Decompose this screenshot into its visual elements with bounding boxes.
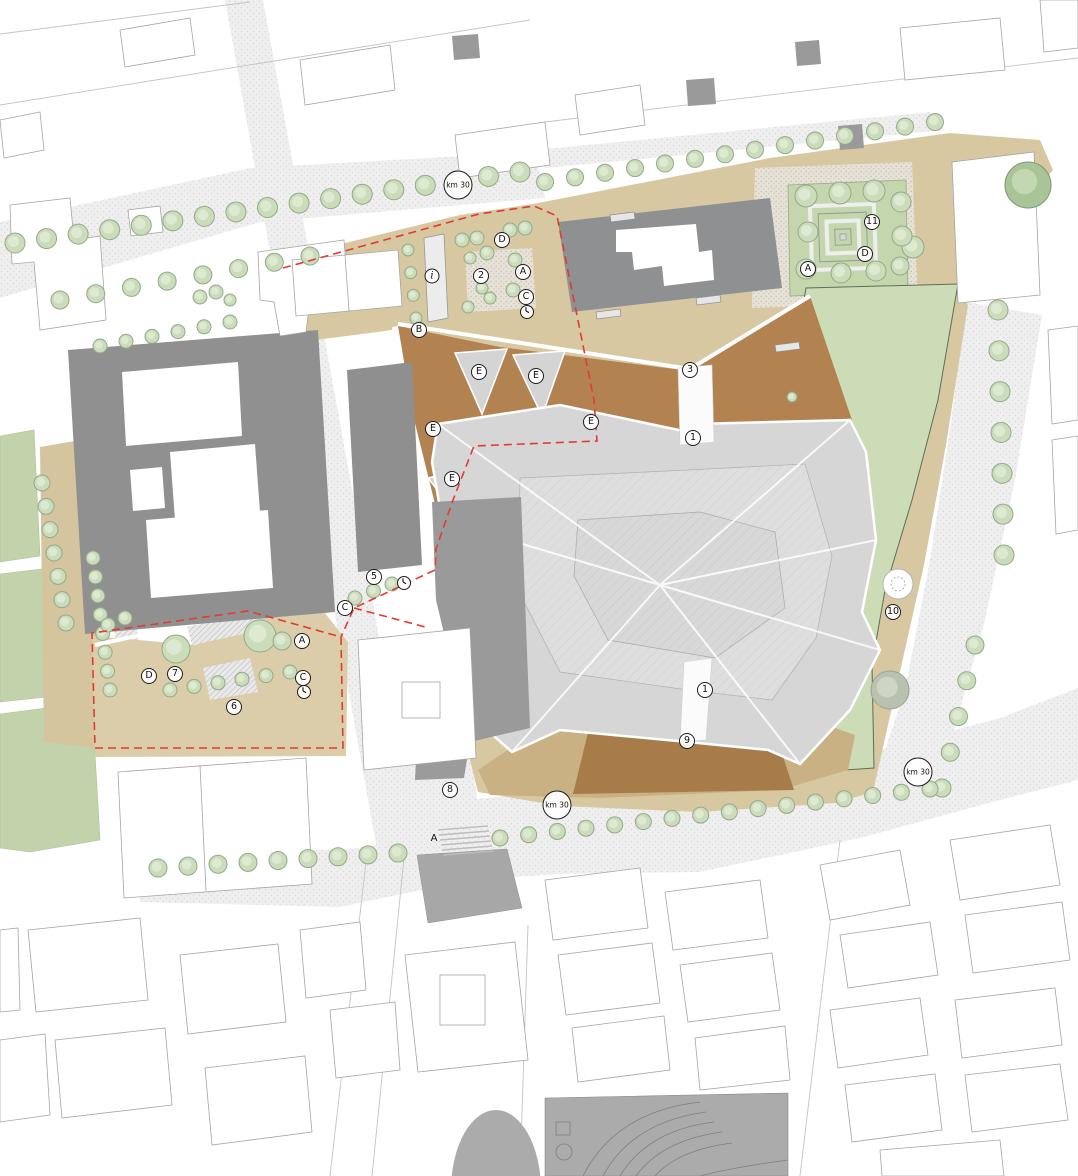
tree-icon xyxy=(506,283,520,297)
tree-icon xyxy=(480,246,494,260)
tree-icon xyxy=(567,169,584,186)
tree-icon xyxy=(518,221,532,235)
tree-icon xyxy=(410,312,422,324)
tree-icon xyxy=(958,672,976,690)
tree-icon xyxy=(464,252,476,264)
tree-icon xyxy=(508,253,522,267)
tree-icon xyxy=(402,244,414,256)
tree-icon xyxy=(100,220,120,240)
tree-icon xyxy=(348,591,362,605)
tree-icon xyxy=(990,382,1010,402)
site-plan-drawing xyxy=(0,0,1078,1176)
annex-building xyxy=(347,362,422,572)
tree-icon xyxy=(226,202,246,222)
tree-icon xyxy=(131,215,151,235)
tree-icon xyxy=(837,127,854,144)
tree-icon xyxy=(798,222,818,242)
tree-icon xyxy=(299,850,317,868)
tree-icon xyxy=(750,801,766,817)
tree-icon xyxy=(103,683,117,697)
tree-icon xyxy=(484,292,496,304)
tree-icon xyxy=(211,676,225,690)
tree-icon xyxy=(187,679,201,693)
tree-icon xyxy=(68,224,88,244)
tree-icon xyxy=(657,155,674,172)
tree-icon xyxy=(98,645,112,659)
tree-icon xyxy=(50,568,66,584)
tree-icon xyxy=(807,132,824,149)
tree-icon xyxy=(407,289,419,301)
tree-icon xyxy=(747,141,764,158)
tree-icon xyxy=(447,171,467,191)
tree-icon xyxy=(829,182,851,204)
tree-icon xyxy=(991,423,1011,443)
tree-icon xyxy=(687,150,704,167)
tree-icon xyxy=(87,285,105,303)
tree-icon xyxy=(578,820,594,836)
tree-icon xyxy=(777,137,794,154)
tree-icon xyxy=(158,272,176,290)
tree-icon xyxy=(405,267,417,279)
tree-icon xyxy=(5,233,25,253)
tree-icon xyxy=(163,211,183,231)
tree-icon xyxy=(209,855,227,873)
tree-icon xyxy=(492,830,508,846)
tree-icon xyxy=(455,233,469,247)
tree-icon xyxy=(193,290,207,304)
tree-icon xyxy=(34,475,50,491)
tree-icon xyxy=(892,226,912,246)
south-gray-building xyxy=(417,849,522,923)
tree-icon xyxy=(93,339,107,353)
tree-icon xyxy=(239,853,257,871)
tree-icon xyxy=(867,123,884,140)
tree-icon xyxy=(807,794,823,810)
bottom-terrace-panel xyxy=(545,1093,788,1176)
tree-icon xyxy=(796,259,816,279)
tree-icon xyxy=(194,206,214,226)
tree-icon xyxy=(235,672,249,686)
tree-icon xyxy=(86,551,100,565)
tree-icon xyxy=(88,570,102,584)
tree-icon xyxy=(269,852,287,870)
block-below-left-plaza xyxy=(118,758,312,898)
tree-icon xyxy=(897,118,914,135)
museum-building xyxy=(68,330,335,634)
tree-icon xyxy=(171,325,185,339)
tree-icon xyxy=(163,683,177,697)
tree-icon xyxy=(470,231,484,245)
tree-icon xyxy=(521,827,537,843)
tree-icon xyxy=(607,817,623,833)
tree-icon xyxy=(893,784,909,800)
tree-icon xyxy=(462,301,474,313)
tree-icon xyxy=(58,615,74,631)
dome-building xyxy=(451,1110,541,1176)
tree-icon xyxy=(367,584,381,598)
tree-icon xyxy=(179,857,197,875)
tree-icon xyxy=(122,278,140,296)
tree-icon xyxy=(510,162,530,182)
tree-icon xyxy=(359,846,377,864)
tree-icon xyxy=(989,341,1009,361)
tree-icon xyxy=(693,807,709,823)
tree-icon xyxy=(891,192,911,212)
site-plan-canvas: km 30km 30km 30i2DACB11DA31EEEEE5CD7AC61… xyxy=(0,0,1078,1176)
tree-icon xyxy=(265,253,283,271)
tree-icon xyxy=(209,285,223,299)
tree-icon xyxy=(891,257,909,275)
tree-icon xyxy=(224,294,236,306)
tree-icon xyxy=(866,261,886,281)
tree-icon xyxy=(162,635,190,663)
tree-icon xyxy=(717,146,734,163)
tree-icon xyxy=(966,636,984,654)
tree-icon xyxy=(119,334,133,348)
tram-platform xyxy=(424,234,448,322)
tree-icon xyxy=(38,498,54,514)
tree-icon xyxy=(194,266,212,284)
tree-icon xyxy=(149,859,167,877)
tree-icon xyxy=(476,282,488,294)
tree-icon xyxy=(478,166,498,186)
tree-icon xyxy=(721,804,737,820)
tree-icon xyxy=(223,315,237,329)
tree-icon xyxy=(787,392,797,402)
tree-icon xyxy=(537,174,554,191)
tree-icon xyxy=(54,592,70,608)
tree-icon xyxy=(863,180,885,202)
tree-icon xyxy=(927,114,944,131)
tree-icon xyxy=(51,291,69,309)
tree-icon xyxy=(244,620,276,652)
north-bridge xyxy=(678,365,714,445)
tree-icon xyxy=(795,185,817,207)
tree-icon xyxy=(329,848,347,866)
tree-icon xyxy=(283,665,297,679)
tree-icon xyxy=(831,263,851,283)
tree-icon xyxy=(384,180,404,200)
tree-icon xyxy=(258,198,278,218)
tree-icon xyxy=(301,247,319,265)
tree-icon xyxy=(836,791,852,807)
fountain xyxy=(883,569,913,599)
tree-icon xyxy=(627,160,644,177)
tree-icon xyxy=(145,329,159,343)
tree-icon xyxy=(37,229,57,249)
tree-icon xyxy=(230,260,248,278)
tree-icon xyxy=(941,743,959,761)
tree-icon xyxy=(597,164,614,181)
tree-icon xyxy=(635,814,651,830)
tree-icon xyxy=(352,184,372,204)
tree-icon xyxy=(389,844,407,862)
tree-icon xyxy=(273,632,291,650)
tree-icon xyxy=(1005,162,1051,208)
tree-icon xyxy=(46,545,62,561)
tree-icon xyxy=(289,193,309,213)
tree-icon xyxy=(993,504,1013,524)
tree-icon xyxy=(42,522,58,538)
white-building-south-of-5 xyxy=(358,628,476,770)
tree-icon xyxy=(549,823,565,839)
tree-icon xyxy=(101,664,115,678)
tree-icon xyxy=(779,797,795,813)
tree-icon xyxy=(385,577,399,591)
tree-icon xyxy=(950,708,968,726)
tree-icon xyxy=(988,300,1008,320)
tree-icon xyxy=(994,545,1014,565)
tree-icon xyxy=(197,320,211,334)
tree-icon xyxy=(118,611,132,625)
tree-icon xyxy=(259,669,273,683)
tree-icon xyxy=(922,781,938,797)
tree-icon xyxy=(865,788,881,804)
tree-icon xyxy=(503,223,517,237)
tree-icon xyxy=(992,463,1012,483)
tree-icon xyxy=(91,589,105,603)
tree-icon xyxy=(871,671,909,709)
tree-icon xyxy=(415,175,435,195)
tree-icon xyxy=(321,189,341,209)
tree-icon xyxy=(664,810,680,826)
